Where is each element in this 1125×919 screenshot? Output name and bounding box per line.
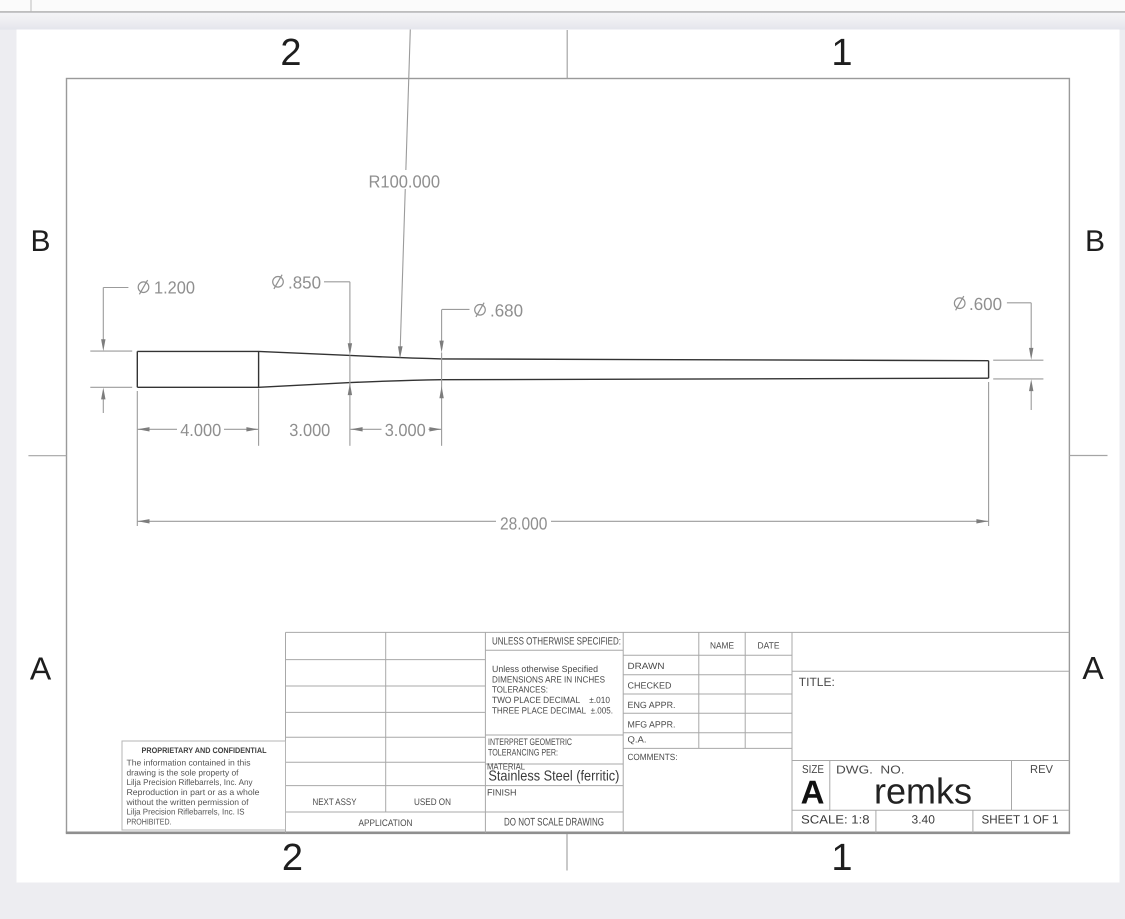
svg-text:TITLE:: TITLE: <box>799 675 835 689</box>
svg-text:TWO PLACE DECIMAL ±.010: TWO PLACE DECIMAL ±.010 <box>492 695 610 705</box>
svg-text:APPLICATION: APPLICATION <box>359 818 413 829</box>
svg-text:Unless otherwise Specified: Unless otherwise Specified <box>492 664 598 674</box>
svg-text:Q.A.: Q.A. <box>628 735 647 745</box>
svg-text:1: 1 <box>831 837 852 879</box>
svg-text:NEXT ASSY: NEXT ASSY <box>313 797 358 808</box>
svg-text:TOLERANCING PER:: TOLERANCING PER: <box>488 748 558 759</box>
svg-text:USED ON: USED ON <box>414 797 451 808</box>
svg-text:The information contained in t: The information contained in this <box>127 758 251 768</box>
svg-text:.600: .600 <box>969 294 1002 314</box>
svg-text:MFG APPR.: MFG APPR. <box>628 720 676 730</box>
svg-text:A: A <box>1082 650 1104 686</box>
svg-text:.680: .680 <box>490 300 523 320</box>
svg-text:A: A <box>30 651 52 687</box>
svg-text:SCALE: 1:8: SCALE: 1:8 <box>801 812 870 826</box>
svg-text:DO NOT SCALE DRAWING: DO NOT SCALE DRAWING <box>504 817 604 829</box>
svg-text:SHEET 1 OF 1: SHEET 1 OF 1 <box>982 812 1059 826</box>
svg-text:ENG APPR.: ENG APPR. <box>628 700 676 710</box>
svg-text:2: 2 <box>282 837 303 879</box>
svg-text:2: 2 <box>280 32 301 74</box>
svg-text:PROHIBITED.: PROHIBITED. <box>127 817 172 827</box>
svg-text:REV: REV <box>1030 764 1053 776</box>
svg-text:DATE: DATE <box>758 641 780 651</box>
svg-text:.850: .850 <box>288 272 321 292</box>
svg-text:Lilja Precision Riflebarrels,: Lilja Precision Riflebarrels, Inc. Any <box>127 777 254 787</box>
svg-text:A: A <box>801 774 825 811</box>
svg-text:INTERPRET GEOMETRIC: INTERPRET GEOMETRIC <box>488 737 572 748</box>
svg-text:TOLERANCES:: TOLERANCES: <box>492 685 548 695</box>
svg-text:UNLESS OTHERWISE SPECIFIED:: UNLESS OTHERWISE SPECIFIED: <box>492 636 621 648</box>
svg-text:3.000: 3.000 <box>385 420 426 440</box>
svg-text:Lilja Precision Riflebarrels,: Lilja Precision Riflebarrels, Inc. IS <box>127 807 245 817</box>
svg-text:1.200: 1.200 <box>154 278 195 298</box>
svg-text:DIMENSIONS ARE IN INCHES: DIMENSIONS ARE IN INCHES <box>492 674 605 684</box>
svg-text:28.000: 28.000 <box>500 513 548 533</box>
svg-text:DRAWN: DRAWN <box>628 661 665 671</box>
svg-text:PROPRIETARY AND CONFIDENTIAL: PROPRIETARY AND CONFIDENTIAL <box>142 746 267 755</box>
svg-text:R100.000: R100.000 <box>369 171 441 191</box>
svg-text:CHECKED: CHECKED <box>628 681 672 691</box>
svg-text:without the written permission: without the written permission of <box>125 797 249 807</box>
svg-text:1: 1 <box>831 32 852 74</box>
svg-text:THREE PLACE DECIMAL ±.005.: THREE PLACE DECIMAL ±.005. <box>492 706 613 716</box>
svg-text:Stainless Steel (ferritic): Stainless Steel (ferritic) <box>488 769 619 785</box>
svg-text:FINISH: FINISH <box>487 787 517 797</box>
svg-text:4.000: 4.000 <box>180 420 221 440</box>
svg-text:3.000: 3.000 <box>289 420 330 440</box>
svg-text:drawing is the sole property o: drawing is the sole property of <box>127 767 240 777</box>
svg-text:NAME: NAME <box>710 641 734 651</box>
svg-text:COMMENTS:: COMMENTS: <box>628 752 678 762</box>
svg-text:remks: remks <box>874 771 972 812</box>
svg-text:B: B <box>1085 225 1105 258</box>
svg-text:B: B <box>30 225 50 258</box>
svg-text:3.40: 3.40 <box>912 812 936 826</box>
svg-text:Reproduction in part or as a w: Reproduction in part or as a whole <box>127 787 260 797</box>
